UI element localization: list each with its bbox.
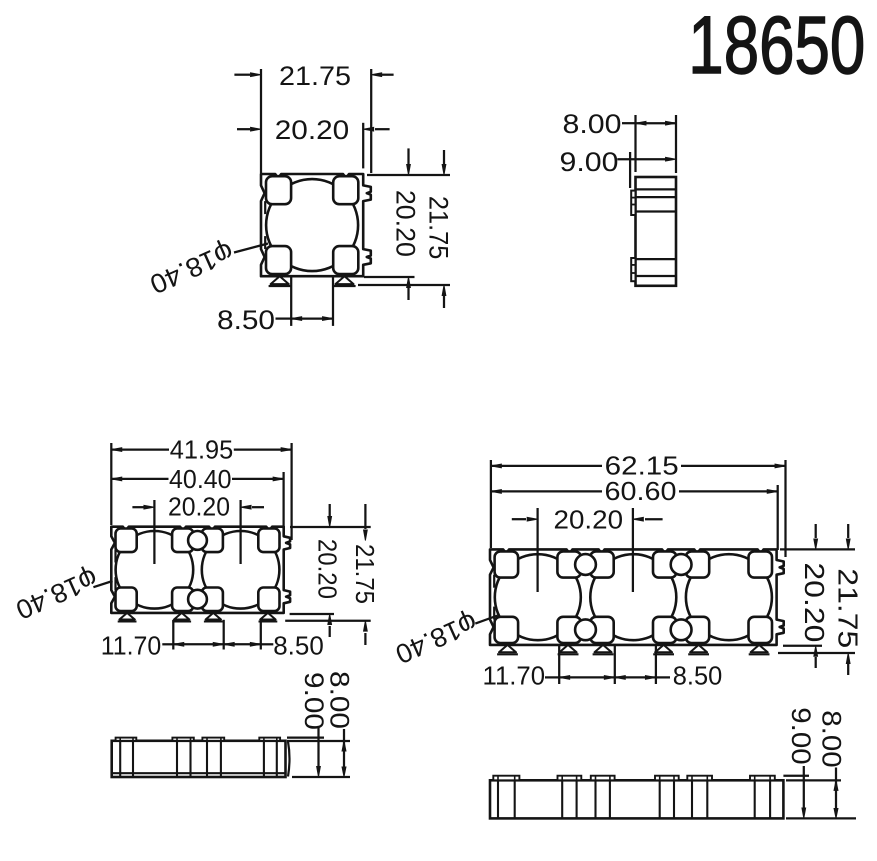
- svg-text:8.00: 8.00: [563, 109, 622, 139]
- svg-text:21.75: 21.75: [279, 61, 351, 91]
- svg-text:9.00: 9.00: [786, 707, 816, 765]
- svg-text:21.75: 21.75: [424, 196, 454, 260]
- svg-text:8.50: 8.50: [673, 661, 723, 691]
- svg-text:20.20: 20.20: [275, 115, 350, 145]
- svg-text:20.20: 20.20: [313, 539, 341, 599]
- svg-text:8.00: 8.00: [325, 671, 355, 729]
- svg-text:21.75: 21.75: [833, 568, 864, 648]
- svg-text:20.20: 20.20: [799, 562, 830, 642]
- svg-text:20.20: 20.20: [391, 190, 421, 257]
- svg-text:11.70: 11.70: [101, 631, 162, 661]
- svg-text:21.75: 21.75: [350, 544, 378, 604]
- svg-text:20.20: 20.20: [554, 505, 624, 535]
- svg-text:18650: 18650: [688, 0, 865, 91]
- svg-text:9.00: 9.00: [560, 147, 619, 177]
- svg-text:41.95: 41.95: [170, 435, 234, 465]
- svg-text:40.40: 40.40: [169, 464, 232, 494]
- svg-text:20.20: 20.20: [168, 492, 230, 522]
- svg-text:60.60: 60.60: [605, 476, 677, 506]
- svg-text:9.00: 9.00: [299, 672, 329, 730]
- svg-text:8.00: 8.00: [817, 710, 847, 768]
- svg-text:8.50: 8.50: [273, 631, 324, 661]
- svg-text:11.70: 11.70: [483, 661, 546, 691]
- svg-text:8.50: 8.50: [217, 305, 275, 335]
